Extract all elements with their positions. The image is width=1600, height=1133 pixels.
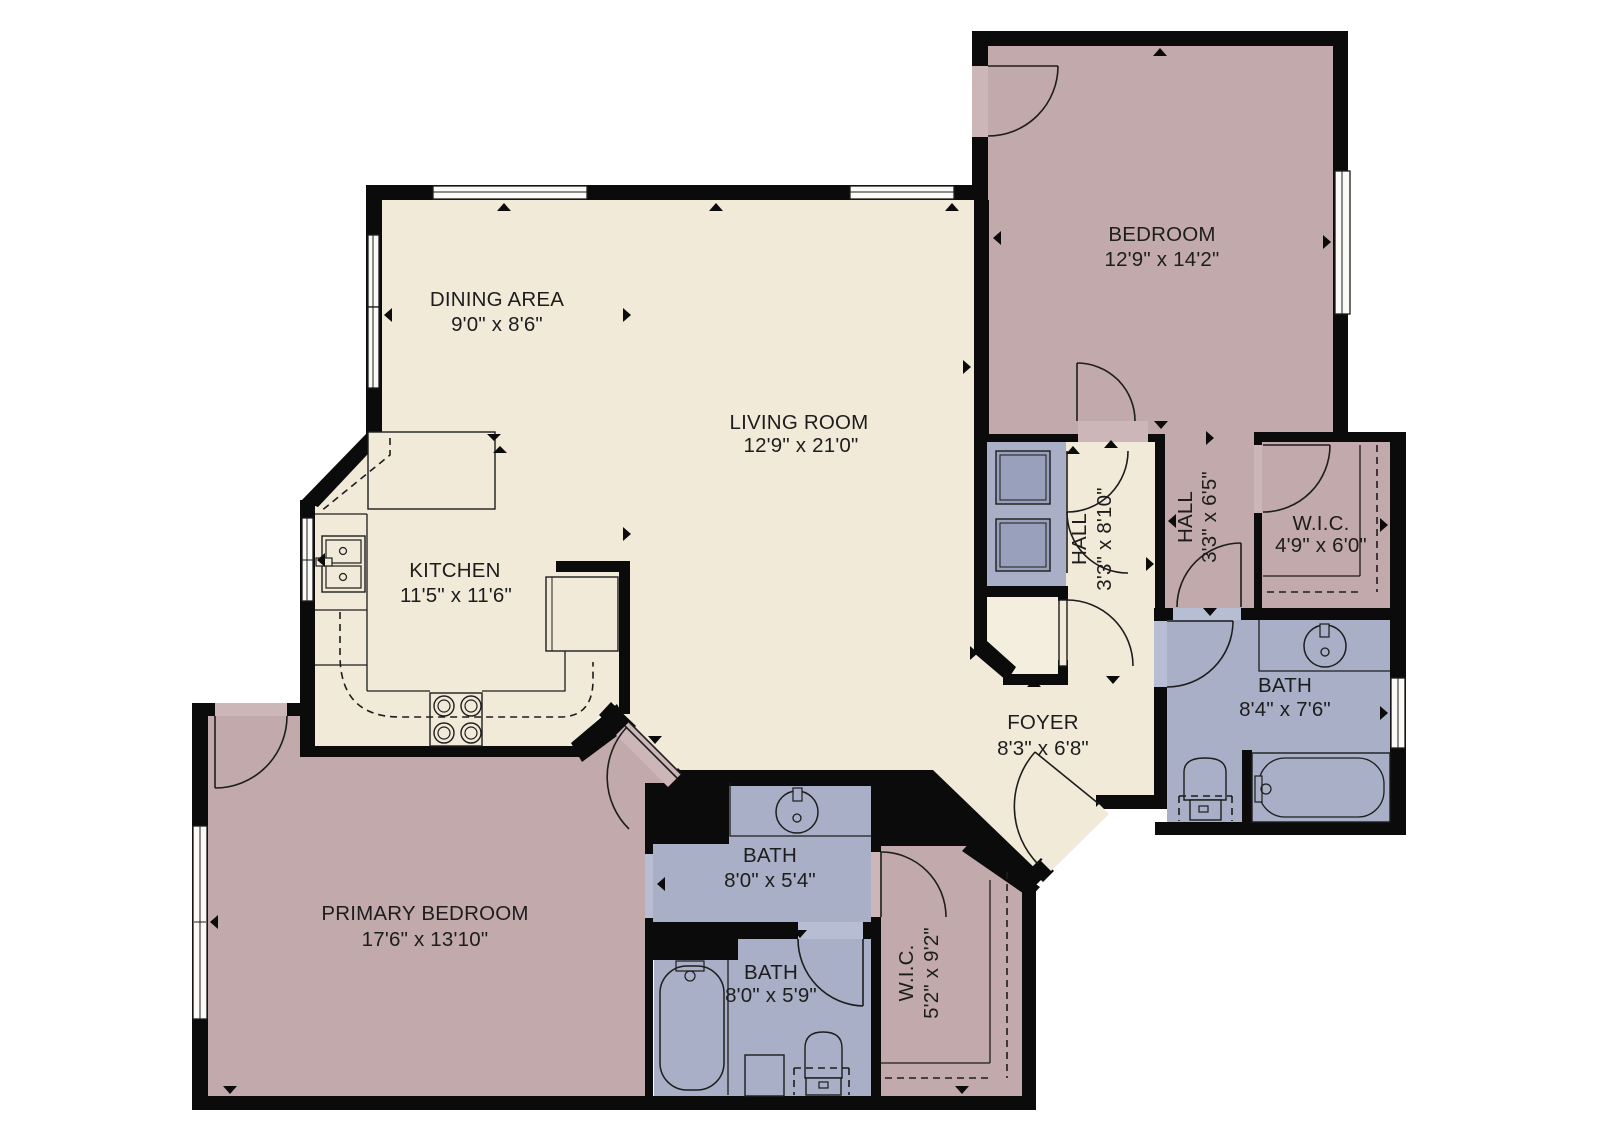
svg-text:W.I.C.: W.I.C. xyxy=(895,944,918,1001)
svg-text:3'3" x 8'10": 3'3" x 8'10" xyxy=(1093,487,1116,590)
svg-text:DINING AREA: DINING AREA xyxy=(430,288,564,311)
svg-text:FOYER: FOYER xyxy=(1007,711,1079,734)
svg-text:BEDROOM: BEDROOM xyxy=(1108,223,1215,246)
svg-text:PRIMARY BEDROOM: PRIMARY BEDROOM xyxy=(321,902,528,925)
svg-text:LIVING ROOM: LIVING ROOM xyxy=(730,411,869,434)
svg-text:8'0" x 5'9": 8'0" x 5'9" xyxy=(725,984,817,1007)
svg-text:W.I.C.: W.I.C. xyxy=(1292,512,1349,535)
svg-text:9'0" x 8'6": 9'0" x 8'6" xyxy=(451,313,543,336)
svg-text:BATH: BATH xyxy=(744,961,798,984)
svg-text:8'4" x 7'6": 8'4" x 7'6" xyxy=(1239,698,1331,721)
svg-text:HALL: HALL xyxy=(1174,491,1197,543)
svg-text:12'9" x 14'2": 12'9" x 14'2" xyxy=(1104,248,1219,271)
svg-text:4'9" x 6'0": 4'9" x 6'0" xyxy=(1275,534,1367,557)
svg-text:3'3" x 6'5": 3'3" x 6'5" xyxy=(1198,471,1221,563)
svg-text:11'5" x 11'6": 11'5" x 11'6" xyxy=(400,584,512,607)
svg-text:5'2" x 9'2": 5'2" x 9'2" xyxy=(920,927,943,1019)
svg-text:12'9" x 21'0": 12'9" x 21'0" xyxy=(743,434,858,457)
svg-text:8'3" x 6'8": 8'3" x 6'8" xyxy=(997,737,1089,760)
svg-text:BATH: BATH xyxy=(743,844,797,867)
svg-text:8'0" x 5'4": 8'0" x 5'4" xyxy=(724,869,816,892)
svg-text:17'6" x 13'10": 17'6" x 13'10" xyxy=(362,928,489,951)
svg-text:HALL: HALL xyxy=(1068,513,1091,565)
svg-text:BATH: BATH xyxy=(1258,674,1312,697)
svg-text:KITCHEN: KITCHEN xyxy=(409,559,500,582)
